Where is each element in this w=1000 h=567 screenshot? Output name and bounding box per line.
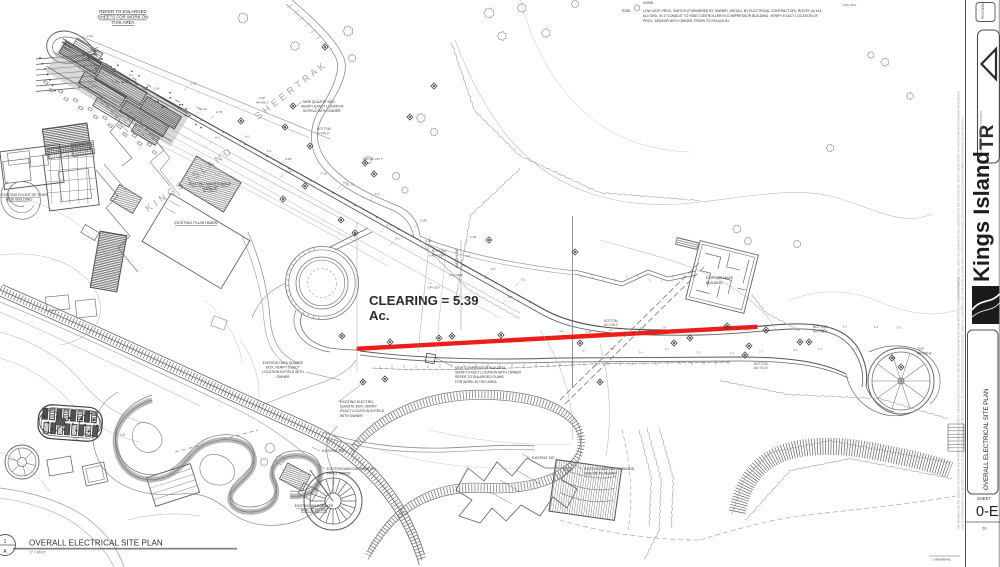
svg-text:2-3A: 2-3A	[201, 107, 207, 111]
svg-text:#2=745.2': #2=745.2'	[604, 323, 618, 327]
svg-text:1-9: 1-9	[608, 328, 612, 332]
svg-text:#3=930.6': #3=930.6'	[917, 351, 932, 355]
svg-text:LVP-CB-2: LVP-CB-2	[843, 3, 857, 7]
svg-text:3-4: 3-4	[639, 350, 643, 354]
svg-text:2-78: 2-78	[216, 110, 222, 114]
svg-text:EXISTING PLUSH BARN: EXISTING PLUSH BARN	[174, 221, 217, 225]
svg-text:2-78: 2-78	[585, 330, 591, 334]
svg-text:3-4: 3-4	[559, 329, 563, 333]
svg-text:LOW GATE PROX. SWITCH (FURNISH: LOW GATE PROX. SWITCH (FURNISHED BY OWNE…	[643, 9, 822, 13]
svg-text:4-1A: 4-1A	[321, 172, 327, 176]
svg-text:5-3: 5-3	[897, 325, 901, 329]
svg-text:5-#T=TRUP: 5-#T=TRUP	[429, 253, 445, 257]
svg-text:ARCHITECTS ENGINEERS PLANNERS: ARCHITECTS ENGINEERS PLANNERS	[979, 110, 983, 158]
svg-text:THE CONTRACTOR SHALL VERIFY AL: THE CONTRACTOR SHALL VERIFY ALL DIMENSIO…	[957, 91, 961, 300]
svg-text:FOR WORK IN THIS AREA.: FOR WORK IN THIS AREA.	[455, 380, 498, 384]
svg-text:EXISTING MAINTENANCE: EXISTING MAINTENANCE	[189, 182, 232, 186]
svg-text:EL 78: EL 78	[346, 183, 354, 187]
svg-text:GARAGE: GARAGE	[203, 187, 219, 191]
svg-text:5-3: 5-3	[610, 347, 614, 351]
svg-text:EXISTING T4G: EXISTING T4G	[322, 449, 345, 453]
svg-text:5-3: 5-3	[793, 348, 797, 352]
svg-text:5-1: 5-1	[521, 277, 526, 281]
svg-text:3-4: 3-4	[730, 351, 734, 355]
svg-text:Ac.: Ac.	[369, 308, 390, 323]
svg-text:#3=935.3': #3=935.3'	[256, 100, 270, 104]
svg-text:REVISIONS: REVISIONS	[981, 2, 985, 19]
svg-text:2-78: 2-78	[190, 82, 196, 86]
svg-text:CD: CD	[120, 433, 126, 437]
svg-text:Kings Island: Kings Island	[969, 151, 994, 282]
svg-text:REFER TO ENLARGED PLANS: REFER TO ENLARGED PLANS	[455, 375, 504, 379]
svg-text:3-2B: 3-2B	[470, 235, 476, 239]
svg-text:THIS AREA: THIS AREA	[112, 20, 135, 25]
svg-text:8-2: 8-2	[508, 295, 513, 299]
svg-text:6-2A: 6-2A	[819, 328, 825, 332]
svg-text:HOME.: HOME.	[643, 1, 654, 5]
svg-text:2-3A: 2-3A	[87, 34, 93, 38]
svg-text:1-9: 1-9	[662, 325, 666, 329]
svg-text:1: 1	[4, 539, 7, 545]
svg-text:5-3: 5-3	[697, 351, 701, 355]
svg-text:NEW COMPRESSOR BUILDING,: NEW COMPRESSOR BUILDING,	[455, 366, 506, 370]
svg-text:EXISTING MAIN DISTRIBUTION: EXISTING MAIN DISTRIBUTION	[327, 467, 376, 471]
svg-text:SHEETS FOR WORK ON: SHEETS FOR WORK ON	[98, 15, 149, 20]
svg-text:EXISTING WINDSEEKER: EXISTING WINDSEEKER	[295, 504, 334, 508]
svg-text:K-1: K-1	[215, 136, 220, 140]
svg-text:5-3: 5-3	[665, 347, 669, 351]
svg-text:2-7: 2-7	[759, 349, 763, 353]
svg-text:3-2B: 3-2B	[96, 57, 102, 61]
svg-text:5-1: 5-1	[491, 267, 496, 271]
svg-text:EXISTING MAZE: EXISTING MAZE	[706, 276, 734, 280]
svg-text:3-2B: 3-2B	[420, 219, 426, 223]
svg-text:2-3A: 2-3A	[153, 87, 159, 91]
svg-text:WITH OWNER.: WITH OWNER.	[340, 414, 364, 418]
svg-text:SHEET: SHEET	[977, 496, 991, 501]
svg-text:MATCHLINE: MATCHLINE	[455, 248, 459, 268]
svg-text:1 MEMBRANE: 1 MEMBRANE	[932, 558, 951, 562]
svg-text:NEW QUAZITE BOX,: NEW QUAZITE BOX,	[303, 100, 336, 104]
svg-text:2=749.2': 2=749.2'	[317, 131, 330, 135]
svg-text:BUILDING: BUILDING	[706, 281, 723, 285]
svg-text:BOX, VERIFY EXACT: BOX, VERIFY EXACT	[266, 366, 299, 370]
svg-text:2-7: 2-7	[583, 348, 587, 352]
svg-text:BOTTOM: BOTTOM	[317, 127, 331, 131]
svg-text:#2=742.6': #2=742.6'	[754, 366, 768, 370]
svg-text:LOCATION IN FIELD WITH: LOCATION IN FIELD WITH	[262, 370, 304, 374]
svg-text:E335: E335	[622, 9, 630, 13]
svg-text:5-1: 5-1	[395, 237, 400, 241]
svg-text:2-7: 2-7	[853, 348, 857, 352]
svg-text:5-1: 5-1	[267, 149, 272, 153]
svg-text:AND ANY INFRINGEMENT WILL BE S: AND ANY INFRINGEMENT WILL BE SUBJECT TO …	[961, 301, 965, 530]
svg-text:IN FIELD WITH OWNER.: IN FIELD WITH OWNER.	[303, 109, 341, 113]
svg-text:RIDE BUILDING: RIDE BUILDING	[6, 198, 32, 202]
svg-text:5-1: 5-1	[129, 73, 134, 77]
svg-text:TOP: TOP	[259, 96, 265, 100]
svg-text:LVP-CB-7: LVP-CB-7	[427, 285, 441, 289]
svg-text:TCP: TCP	[917, 347, 925, 351]
svg-text:TOP #3=781.7': TOP #3=781.7'	[363, 157, 383, 161]
svg-text:OVERALL ELECTRICAL SITE PLAN: OVERALL ELECTRICAL SITE PLAN	[983, 389, 990, 490]
svg-text:1" = 60'-0": 1" = 60'-0"	[30, 551, 46, 555]
svg-text:2-3A: 2-3A	[286, 169, 292, 173]
svg-text:EXISTING T4D: EXISTING T4D	[532, 456, 555, 460]
svg-text:WITH THE WORK ALL WORK SHALL: WITH THE WORK ALL WORK SHALL CONFORM TO …	[961, 116, 965, 300]
svg-text:CD: CD	[73, 436, 79, 441]
svg-text:K-1: K-1	[245, 135, 250, 139]
svg-text:0-E1: 0-E1	[976, 504, 1000, 520]
svg-text:5-3: 5-3	[843, 325, 847, 329]
svg-text:QUAZITE BOX, VERIFY: QUAZITE BOX, VERIFY	[340, 405, 378, 409]
svg-text:8-1: 8-1	[874, 325, 878, 329]
svg-text:RIDE (BLDG 370): RIDE (BLDG 370)	[301, 509, 327, 513]
svg-text:EXISTING DATA QUAZITE: EXISTING DATA QUAZITE	[263, 361, 304, 365]
svg-text:PROX. SENSOR WITH OWNER, PRIOR: PROX. SENSOR WITH OWNER, PRIOR TO ROUGH-…	[643, 19, 730, 23]
svg-text:OVERALL ELECTRICAL SITE PLAN: OVERALL ELECTRICAL SITE PLAN	[29, 539, 163, 548]
svg-text:EXISTING FLIGHT OF FEAR: EXISTING FLIGHT OF FEAR	[1, 193, 47, 197]
svg-text:3-2B: 3-2B	[285, 157, 291, 161]
svg-text:OWNER: OWNER	[277, 375, 291, 379]
svg-text:REFER TO ENLARGED: REFER TO ENLARGED	[99, 9, 146, 14]
svg-text:EXACT LOCATION IN FIELD: EXACT LOCATION IN FIELD	[340, 409, 385, 413]
svg-text:PANEL 'MDP25': PANEL 'MDP25'	[327, 472, 351, 476]
svg-text:2-78: 2-78	[130, 79, 136, 83]
svg-text:K-1: K-1	[375, 192, 380, 196]
svg-text:#14 GRD, IN 1" CONDUIT TO RIDE: #14 GRD, IN 1" CONDUIT TO RIDE CONTROLLE…	[643, 14, 818, 18]
svg-text:8-2: 8-2	[386, 223, 391, 227]
svg-text:VERIFY EXACT LOCATION WITH OWN: VERIFY EXACT LOCATION WITH OWNER	[455, 371, 521, 375]
svg-text:3-4: 3-4	[818, 347, 822, 351]
svg-text:VERIFY EXACT LOCATION: VERIFY EXACT LOCATION	[301, 105, 344, 109]
svg-text:EXISTING ELECTRIC: EXISTING ELECTRIC	[340, 400, 374, 404]
svg-text:20: 20	[982, 526, 987, 531]
svg-text:THIS DRAWING AND THE DESIGN IT: THIS DRAWING AND THE DESIGN IT COVERS AR…	[957, 277, 961, 530]
